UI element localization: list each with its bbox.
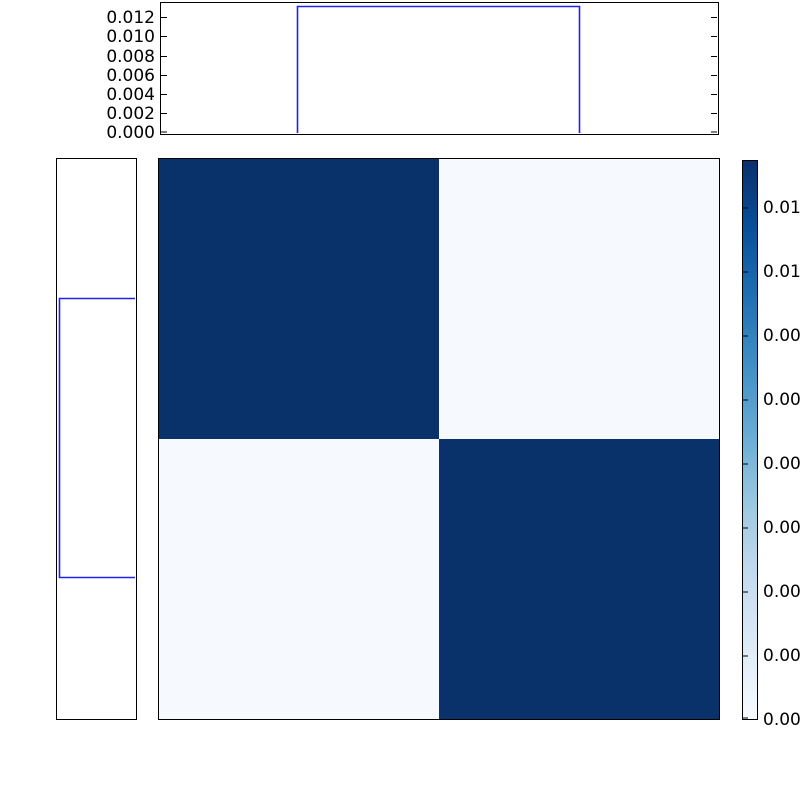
top-hist-axis-ticks	[161, 18, 717, 133]
left-marginal-plot	[57, 159, 135, 718]
top-step-line	[298, 7, 580, 134]
heatmap-cell-top-left	[159, 159, 439, 439]
heatmap-cell-bottom-right	[439, 439, 719, 719]
top-marginal-plot	[161, 3, 717, 133]
colorbar-tick-label: 0.0060	[763, 454, 800, 474]
left-marginal-panel	[56, 158, 137, 720]
heatmap-cell-top-right	[439, 159, 719, 439]
top-hist-ytick-label: 0.010	[0, 27, 155, 47]
top-hist-ytick-label: 0.002	[0, 104, 155, 124]
figure-canvas: 0.012 0.010 0.008 0.006 0.004 0.002 0.00…	[0, 0, 800, 800]
colorbar-tick-label: 0.0120	[763, 198, 800, 218]
colorbar-tick-label: 0.0015	[763, 646, 800, 666]
top-hist-ytick-label: 0.008	[0, 47, 155, 67]
top-hist-ytick-label: 0.006	[0, 66, 155, 86]
top-hist-ytick-label: 0.012	[0, 8, 155, 28]
colorbar-tick-label: 0.0075	[763, 390, 800, 410]
left-step-line	[60, 299, 136, 578]
colorbar-tick-label: 0.0045	[763, 518, 800, 538]
colorbar	[742, 160, 758, 720]
top-hist-ytick-label: 0.004	[0, 85, 155, 105]
joint-heatmap	[158, 158, 720, 720]
colorbar-tick-label: 0.0000	[763, 710, 800, 730]
colorbar-tick-label: 0.0090	[763, 326, 800, 346]
top-marginal-panel	[160, 2, 719, 135]
top-hist-ytick-label: 0.000	[0, 123, 155, 143]
colorbar-tick-label: 0.0030	[763, 582, 800, 602]
colorbar-ticks	[743, 161, 757, 719]
colorbar-tick-label: 0.0105	[763, 262, 800, 282]
heatmap-cell-bottom-left	[159, 439, 439, 719]
